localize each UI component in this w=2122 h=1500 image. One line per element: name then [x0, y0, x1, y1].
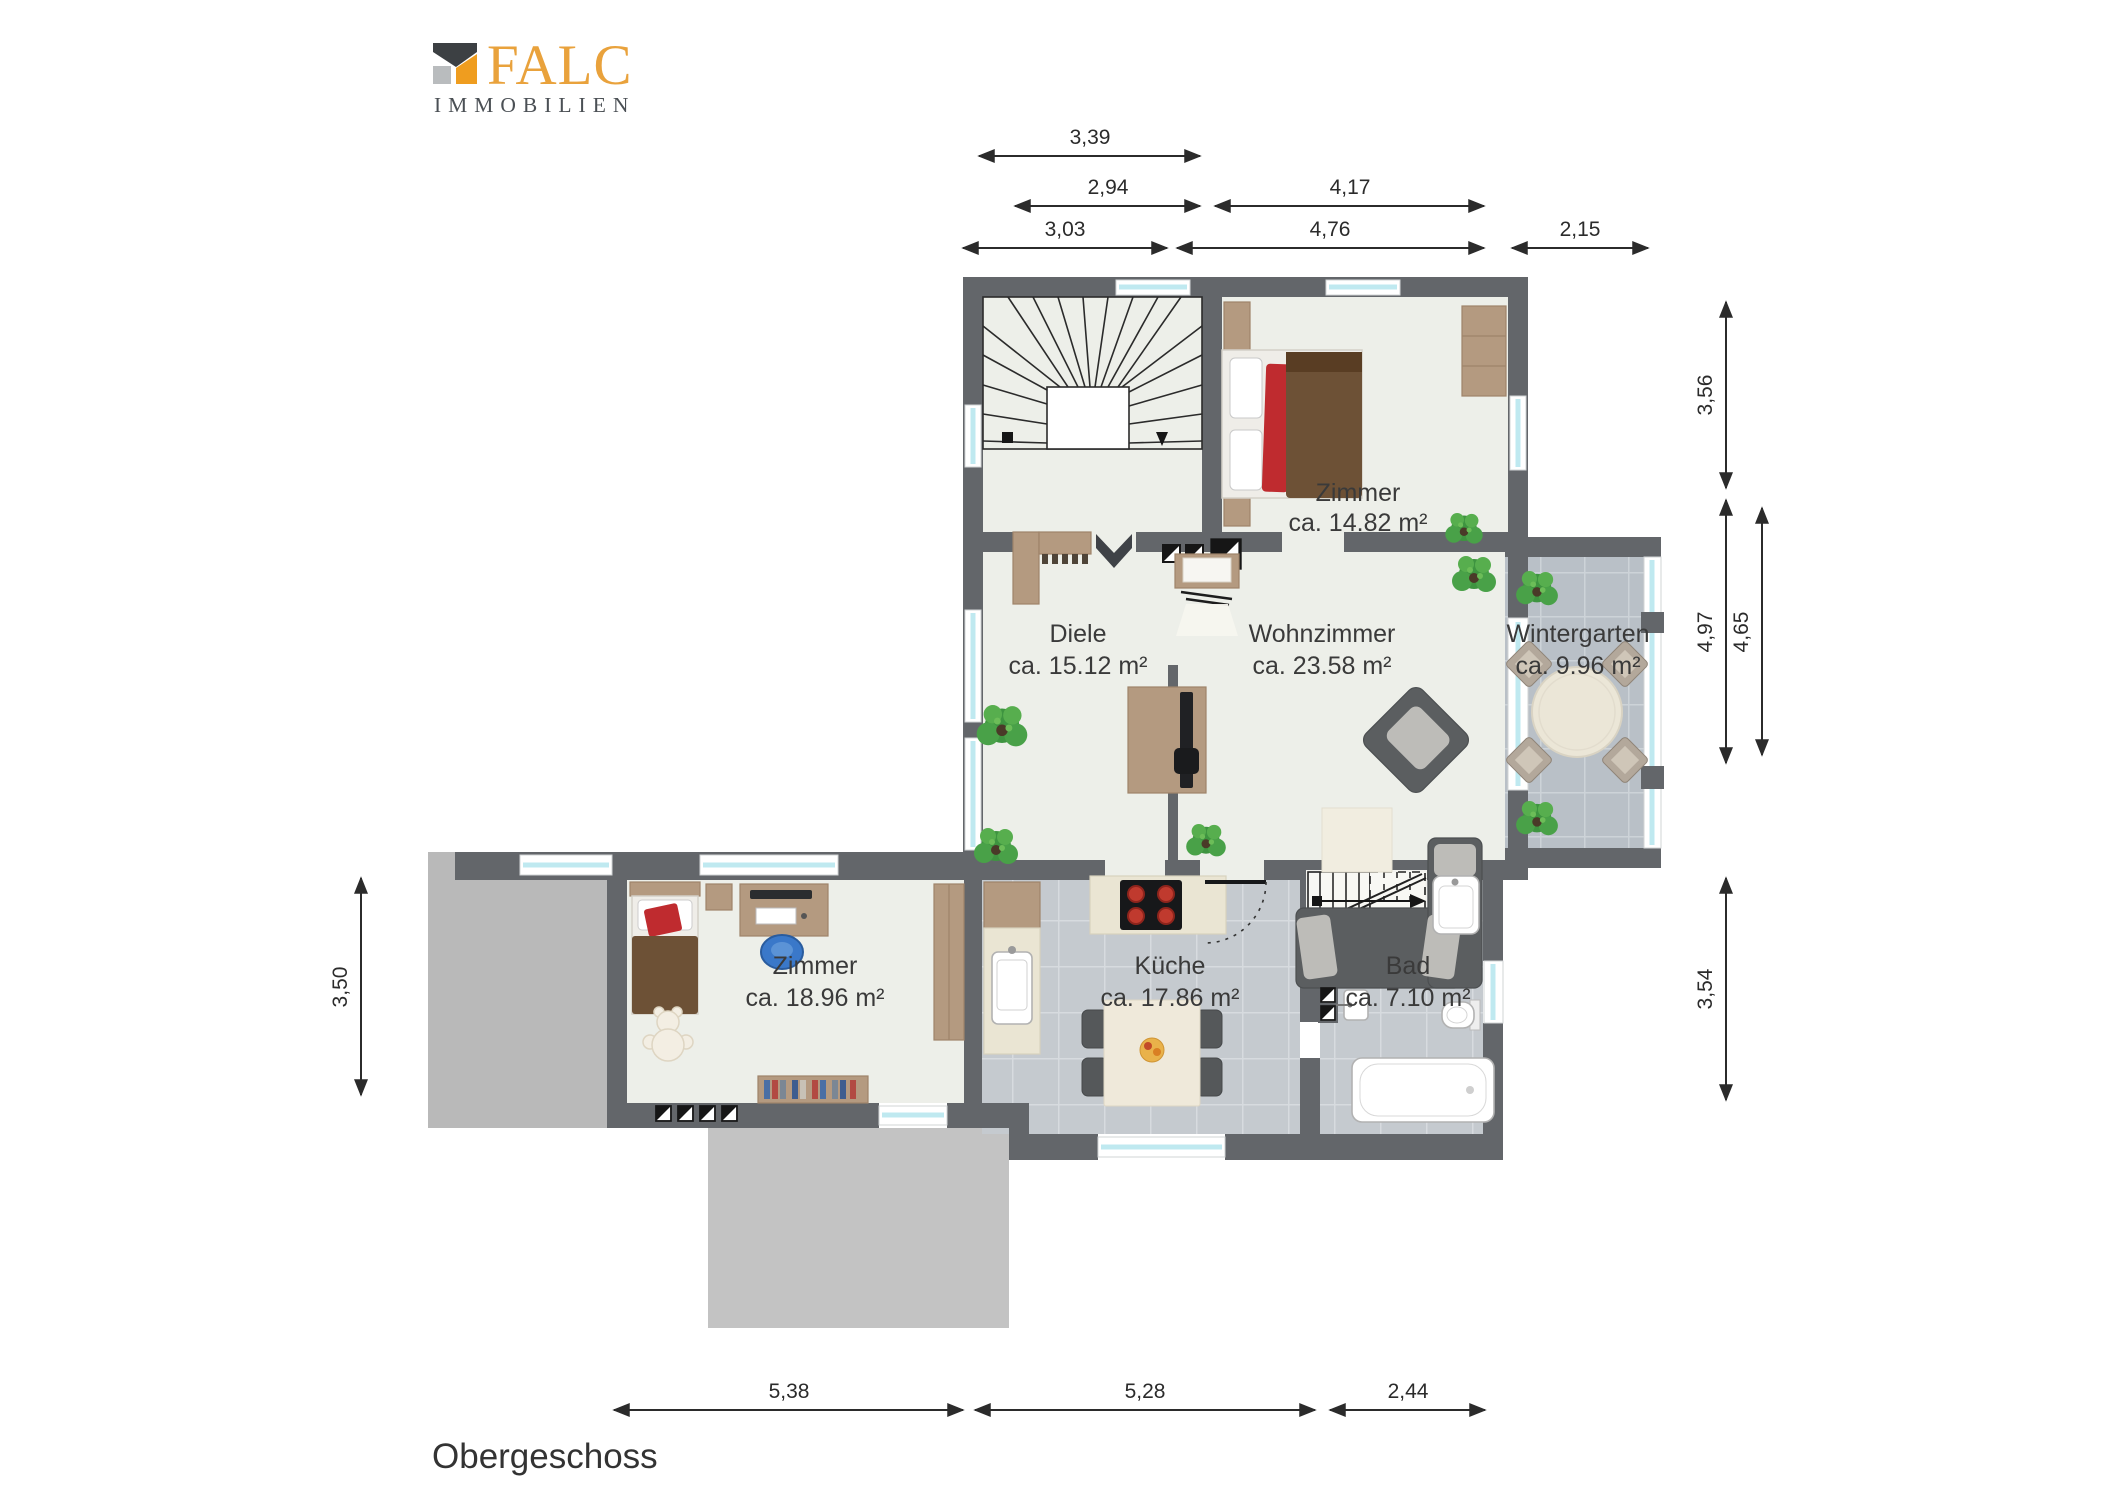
- desk-icon: [740, 884, 828, 936]
- coffee-table-icon: [1322, 808, 1392, 872]
- svg-text:Wintergarten: Wintergarten: [1506, 620, 1649, 648]
- svg-text:ca. 15.12 m²: ca. 15.12 m²: [1009, 652, 1148, 680]
- window: [879, 1106, 947, 1125]
- svg-text:3,56: 3,56: [1694, 375, 1717, 416]
- kitchen-sink-icon: [992, 946, 1032, 1024]
- svg-text:2,44: 2,44: [1388, 1380, 1429, 1403]
- window: [520, 855, 612, 875]
- kitchen-cabinet: [984, 882, 1040, 928]
- wardrobe: [1462, 306, 1506, 396]
- single-bed-icon: [630, 882, 700, 1014]
- svg-text:4,76: 4,76: [1310, 218, 1351, 241]
- dim-bottom-2: 5,28: [975, 1380, 1315, 1410]
- light-cone: [1176, 604, 1238, 636]
- svg-text:4,17: 4,17: [1330, 176, 1371, 199]
- svg-text:3,03: 3,03: [1045, 218, 1086, 241]
- plant-icon: [1186, 824, 1226, 856]
- dim-right-4: 3,54: [1694, 878, 1726, 1100]
- window: [700, 855, 838, 875]
- brand-name: FALC: [487, 34, 632, 97]
- svg-text:ca. 9.96 m²: ca. 9.96 m²: [1515, 652, 1640, 680]
- dim-bottom-3: 2,44: [1330, 1380, 1485, 1410]
- plant-icon: [977, 705, 1028, 746]
- wintergarten-glazing: [1644, 557, 1661, 848]
- svg-text:ca. 17.86 m²: ca. 17.86 m²: [1101, 984, 1240, 1012]
- plant-icon: [1445, 513, 1482, 544]
- plant-icon: [974, 828, 1018, 864]
- nightstand: [706, 884, 732, 910]
- floorplan-page: Zimmer ca. 14.82 m² Diele ca. 15.12 m² W…: [0, 0, 2122, 1500]
- flat-roof-left: [428, 852, 607, 1128]
- dim-top-5: 4,76: [1177, 218, 1484, 248]
- logo-mark-gray: [433, 66, 451, 84]
- window: [1510, 396, 1526, 470]
- svg-text:5,38: 5,38: [769, 1380, 810, 1403]
- flat-roof-bottom: [708, 1128, 1009, 1328]
- glazing-mullion: [1641, 766, 1664, 789]
- dim-left-1: 3,50: [329, 878, 361, 1095]
- svg-text:Zimmer: Zimmer: [773, 952, 858, 980]
- dim-right-3: 4,65: [1730, 508, 1762, 755]
- window: [1326, 280, 1400, 295]
- plant-icon: [1516, 801, 1558, 835]
- appliance-marker-icon: [1321, 988, 1335, 1002]
- window: [965, 610, 981, 722]
- svg-text:ca. 7.10 m²: ca. 7.10 m²: [1345, 984, 1470, 1012]
- window: [1116, 280, 1190, 295]
- window: [1098, 1137, 1225, 1157]
- stair-railing-post: [1013, 532, 1039, 604]
- svg-text:ca. 23.58 m²: ca. 23.58 m²: [1253, 652, 1392, 680]
- svg-text:3,50: 3,50: [329, 967, 352, 1008]
- svg-text:ca. 18.96 m²: ca. 18.96 m²: [746, 984, 885, 1012]
- svg-text:Bad: Bad: [1386, 952, 1430, 980]
- cooktop-icon: [1120, 880, 1182, 930]
- svg-text:4,97: 4,97: [1694, 612, 1717, 653]
- svg-text:ca. 14.82 m²: ca. 14.82 m²: [1289, 509, 1428, 537]
- plant-icon: [1516, 571, 1558, 605]
- plant-icon: [1452, 556, 1496, 592]
- dim-bottom-1: 5,38: [614, 1380, 963, 1410]
- brand-subtitle: IMMOBILIEN: [434, 93, 635, 117]
- washbasin-icon: [1433, 876, 1479, 934]
- dim-top-6: 2,15: [1512, 218, 1648, 248]
- svg-text:4,65: 4,65: [1730, 612, 1753, 653]
- dim-top-2: 2,94: [1015, 176, 1200, 206]
- double-bed-icon: [1222, 350, 1362, 498]
- floorplan-drawing: Zimmer ca. 14.82 m² Diele ca. 15.12 m² W…: [0, 0, 2122, 1500]
- svg-text:Zimmer: Zimmer: [1316, 479, 1401, 507]
- dim-top-1: 3,39: [979, 126, 1200, 156]
- dim-top-3: 4,17: [1215, 176, 1484, 206]
- svg-text:5,28: 5,28: [1125, 1380, 1166, 1403]
- dim-right-1: 3,56: [1694, 302, 1726, 488]
- falc-logo: FALC IMMOBILIEN: [433, 34, 635, 117]
- svg-text:2,94: 2,94: [1088, 176, 1129, 199]
- window: [1484, 961, 1503, 1023]
- svg-text:2,15: 2,15: [1560, 218, 1601, 241]
- bookshelf-icon: [758, 1076, 868, 1103]
- stair-landing: [1047, 387, 1129, 449]
- svg-text:Küche: Küche: [1135, 952, 1206, 980]
- window: [965, 738, 981, 850]
- svg-text:Diele: Diele: [1050, 620, 1107, 648]
- dim-top-4: 3,03: [963, 218, 1167, 248]
- svg-text:Wohnzimmer: Wohnzimmer: [1249, 620, 1396, 648]
- dim-right-2: 4,97: [1694, 500, 1726, 763]
- floor-title: Obergeschoss: [432, 1437, 658, 1476]
- stair-start-marker: [1002, 432, 1013, 443]
- svg-text:3,39: 3,39: [1070, 126, 1111, 149]
- round-table-icon: [1532, 667, 1622, 757]
- appliance-marker-icon: [1321, 1006, 1335, 1020]
- stair-railing: [1039, 532, 1091, 554]
- bathtub-icon: [1352, 1058, 1494, 1122]
- svg-text:3,54: 3,54: [1694, 968, 1717, 1009]
- tv-sideboard-icon: [1128, 687, 1206, 793]
- window: [965, 405, 981, 467]
